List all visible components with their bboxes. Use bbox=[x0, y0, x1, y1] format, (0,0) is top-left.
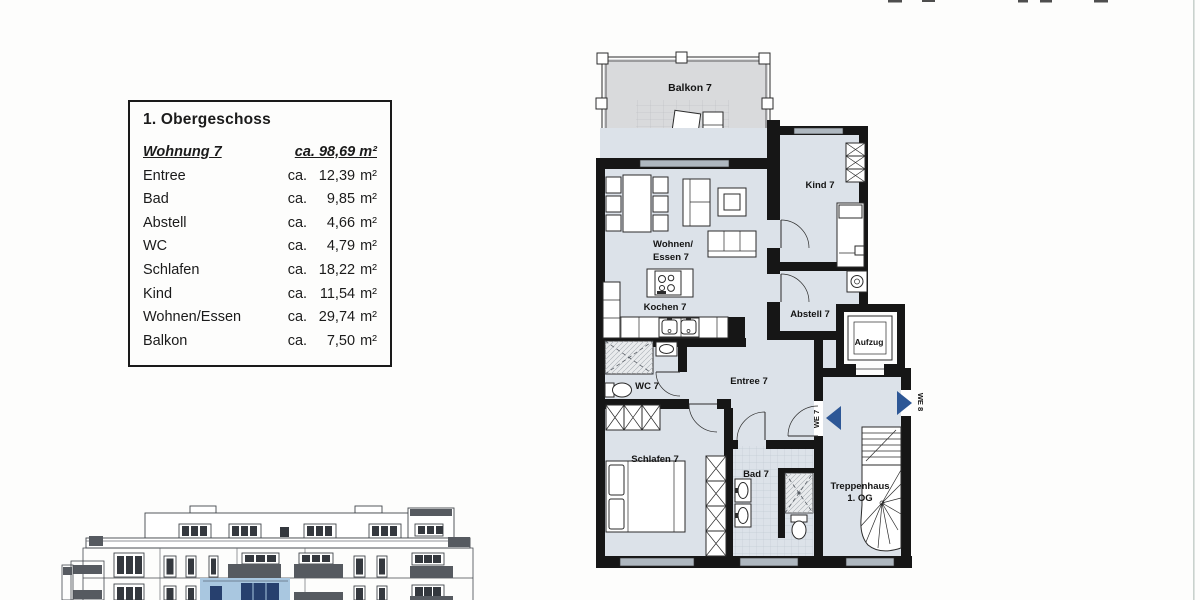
room-label-kochen: Kochen 7 bbox=[644, 302, 687, 313]
bath-sink bbox=[735, 504, 751, 527]
room-label-treppenhaus-line1: Treppenhaus bbox=[830, 481, 889, 492]
double-bed bbox=[606, 461, 685, 532]
scan-artifacts-top-edge bbox=[888, 0, 1108, 3]
shower bbox=[605, 341, 653, 374]
room-label-aufzug: Aufzug bbox=[855, 337, 884, 347]
child-wardrobe bbox=[846, 143, 865, 182]
balcony-railing bbox=[410, 566, 453, 578]
sofa bbox=[683, 179, 710, 226]
room-label-kind: Kind 7 bbox=[805, 180, 834, 191]
child-bed bbox=[837, 203, 864, 267]
wc-sink bbox=[656, 342, 677, 356]
roof-box bbox=[355, 506, 382, 513]
bedroom-wardrobe-top bbox=[606, 405, 660, 430]
bath-partition-wall bbox=[778, 468, 785, 538]
room-label-treppenhaus-line2: 1. OG bbox=[847, 493, 872, 504]
balcony-railing bbox=[294, 564, 343, 578]
floorplan-drawing: Balkon 7 Wohnen/ Essen 7 Kochen 7 Kind 7… bbox=[0, 0, 1200, 600]
room-label-wc: WC 7 bbox=[635, 381, 659, 392]
unit-label-we7: WE 7 bbox=[812, 410, 821, 428]
bath-toilet bbox=[791, 515, 807, 539]
bedroom-wardrobe-side bbox=[706, 456, 726, 556]
room-label-entree: Entree 7 bbox=[730, 376, 768, 387]
balcony-railing bbox=[228, 564, 281, 578]
room-label-wohnen-line1: Wohnen/ bbox=[653, 239, 693, 250]
room-label-abstell: Abstell 7 bbox=[790, 309, 830, 320]
tv-cabinet bbox=[718, 188, 746, 216]
toilet bbox=[605, 383, 632, 397]
highlighted-apartment-zone bbox=[200, 578, 290, 600]
bath-sink bbox=[735, 479, 751, 502]
dining-set bbox=[606, 175, 668, 232]
room-label-wohnen-line2: Essen 7 bbox=[653, 252, 689, 263]
kitchen-island-cooktop bbox=[647, 269, 693, 297]
building-elevation bbox=[62, 506, 473, 600]
roof-band bbox=[86, 538, 470, 548]
second-floor-windows bbox=[114, 553, 453, 578]
right-roof-structure bbox=[408, 508, 454, 538]
balcony-door-glazing bbox=[640, 160, 729, 167]
bath-shower bbox=[785, 473, 813, 513]
roof-box bbox=[190, 506, 216, 513]
room-label-balkon: Balkon 7 bbox=[668, 82, 712, 94]
scanned-floorplan-page: 1. Obergeschoss Wohnung 7 ca. 98,69 m² E… bbox=[0, 0, 1200, 600]
couch bbox=[708, 231, 756, 257]
washing-machine bbox=[847, 271, 867, 292]
room-label-schlafen: Schlafen 7 bbox=[631, 454, 679, 465]
room-label-bad: Bad 7 bbox=[743, 469, 769, 480]
scan-edge-line bbox=[1193, 0, 1195, 600]
unit-label-we8: WE 8 bbox=[916, 393, 925, 411]
